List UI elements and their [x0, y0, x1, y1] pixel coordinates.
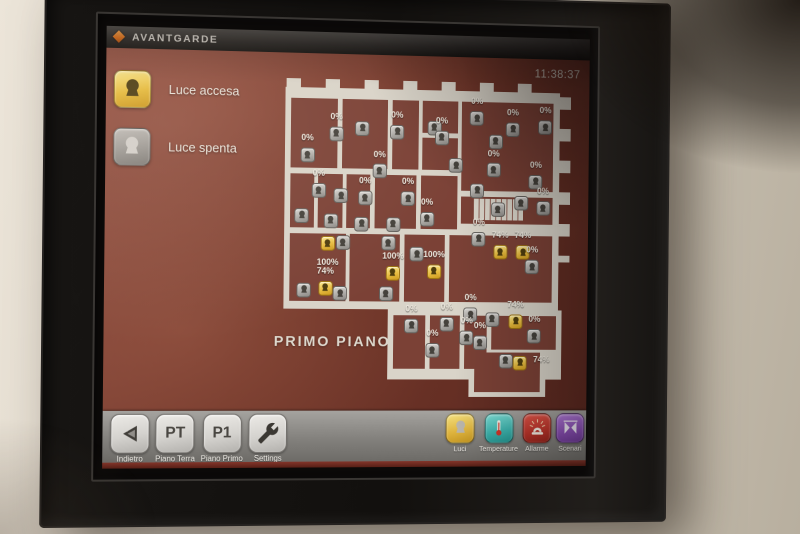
lamp-off-icon[interactable]	[527, 329, 541, 344]
lamp-off-icon[interactable]	[324, 213, 338, 228]
lamp-level-label: 74%	[533, 354, 550, 364]
brand-logo-text: AVANTGARDE	[132, 31, 218, 45]
lamp-level-label: 0%	[528, 314, 540, 324]
lamp-off-icon[interactable]	[356, 121, 370, 136]
bottom-toolbar: Indietro PT Piano Terra P1 Piano Primo	[102, 410, 586, 462]
lamp-level-label: 0%	[465, 293, 477, 303]
thermometer-icon	[489, 418, 508, 437]
lamp-level-label: 0%	[312, 168, 324, 178]
lamp-off-icon[interactable]	[390, 124, 404, 139]
photo-frame: AVANTGARDE 11:38:37 Luce accesa	[39, 0, 671, 528]
lamp-off-icon[interactable]	[536, 201, 550, 216]
lamp-off-icon[interactable]	[435, 130, 449, 145]
scenes-button[interactable]	[556, 413, 585, 443]
clock: 11:38:37	[535, 66, 581, 81]
lamp-level-label: 0%	[461, 316, 473, 326]
settings-button[interactable]	[249, 413, 288, 452]
lamp-level-label: 0%	[374, 149, 386, 159]
lamp-level-label: 0%	[301, 133, 314, 143]
lamp-off-icon[interactable]	[470, 183, 484, 198]
lamp-off-icon[interactable]	[506, 122, 520, 137]
bulb-off-icon	[113, 127, 151, 165]
lamp-level-label: 0%	[474, 321, 486, 331]
lamp-off-icon[interactable]	[449, 158, 463, 173]
lamp-on-icon[interactable]	[508, 314, 522, 329]
lamp-level-label: 0%	[530, 160, 542, 170]
bulb-icon	[451, 418, 470, 437]
back-icon	[118, 421, 142, 445]
lamp-level-label: 74%	[492, 230, 509, 240]
screen-bezel: AVANTGARDE 11:38:37 Luce accesa	[91, 12, 600, 482]
lamp-level-label: 0%	[421, 197, 433, 207]
lamp-level-label: 0%	[488, 148, 500, 158]
lamp-level-label: 74%	[317, 266, 334, 276]
lamp-on-icon[interactable]	[427, 264, 441, 279]
plan-title: PRIMO PIANO	[274, 333, 391, 350]
lamp-level-label: 0%	[359, 175, 371, 185]
alarm-label: Allarme	[525, 444, 548, 453]
lights-label: Luci	[453, 444, 466, 453]
lamp-off-icon[interactable]	[381, 236, 395, 251]
legend-label: Luce accesa	[169, 82, 240, 98]
lamp-off-icon[interactable]	[401, 191, 415, 206]
lamp-level-label: 0%	[471, 96, 483, 106]
lamp-off-icon[interactable]	[473, 336, 487, 351]
lamp-off-icon[interactable]	[329, 126, 343, 141]
legend-item-light-off: Luce spenta	[113, 127, 237, 167]
wrench-icon	[257, 422, 279, 445]
lamp-off-icon[interactable]	[404, 318, 418, 333]
lamp-on-icon[interactable]	[493, 245, 507, 260]
lamp-off-icon[interactable]	[336, 235, 350, 250]
lamp-level-label: 74%	[507, 299, 524, 309]
lamp-off-icon[interactable]	[372, 164, 386, 179]
brand-logo-icon	[113, 30, 125, 43]
lamp-off-icon[interactable]	[295, 208, 309, 223]
lamp-level-label: 0%	[426, 328, 438, 338]
lights-button[interactable]	[446, 413, 475, 443]
lamp-off-icon[interactable]	[386, 217, 400, 232]
wall: AVANTGARDE 11:38:37 Luce accesa	[0, 0, 800, 534]
alarm-icon	[528, 418, 547, 437]
lamp-on-icon[interactable]	[513, 356, 527, 370]
lamp-level-label: 100%	[423, 249, 445, 259]
back-button[interactable]	[110, 413, 150, 453]
lamp-off-icon[interactable]	[334, 188, 348, 203]
lamp-level-label: 0%	[473, 217, 485, 227]
floor-p1-button[interactable]: P1	[202, 413, 241, 453]
lamp-level-label: 0%	[391, 109, 403, 119]
lamp-level-label: 0%	[405, 303, 417, 313]
lamp-off-icon[interactable]	[410, 247, 424, 262]
lamp-off-icon[interactable]	[425, 343, 439, 358]
lamp-level-label: 100%	[382, 251, 404, 261]
lamp-off-icon[interactable]	[358, 191, 372, 206]
lamp-on-icon[interactable]	[321, 236, 335, 251]
lamp-on-icon[interactable]	[318, 281, 332, 296]
lamp-off-icon[interactable]	[514, 196, 528, 211]
floor-pt-button[interactable]: PT	[156, 413, 195, 453]
lamp-off-icon[interactable]	[472, 232, 486, 247]
legend-item-light-on: Luce accesa	[114, 69, 240, 110]
lamp-level-label: 0%	[330, 111, 342, 121]
lamp-off-icon[interactable]	[420, 212, 434, 227]
plan-room	[491, 316, 556, 350]
lamp-off-icon[interactable]	[297, 283, 311, 298]
scenes-label: Scenari	[558, 443, 581, 452]
main-content: 11:38:37 Luce accesa Luce spenta	[103, 47, 590, 410]
floor-plan: PRIMO PIANO 0%0%0%0%0%0%0%0%0%0%0%0%0%0%…	[278, 77, 572, 403]
lamp-off-icon[interactable]	[440, 317, 454, 332]
lamp-off-icon[interactable]	[300, 148, 314, 163]
bulb-on-icon	[114, 69, 152, 108]
lamp-off-icon[interactable]	[538, 121, 552, 136]
lamp-level-label: 0%	[537, 187, 549, 197]
legend-label: Luce spenta	[168, 139, 237, 155]
lamp-level-label: 0%	[402, 176, 414, 186]
lamp-level-label: 0%	[436, 115, 448, 125]
balcony-edge	[558, 97, 571, 263]
lamp-level-label: 0%	[441, 302, 453, 312]
lamp-off-icon[interactable]	[459, 331, 473, 346]
lamp-level-label: 0%	[526, 245, 538, 255]
touchscreen: AVANTGARDE 11:38:37 Luce accesa	[102, 25, 590, 468]
lamp-off-icon[interactable]	[525, 260, 539, 275]
lamp-level-label: 0%	[507, 107, 519, 117]
curtain-icon	[561, 418, 579, 437]
lamp-off-icon[interactable]	[491, 203, 505, 218]
lamp-off-icon[interactable]	[333, 286, 347, 301]
lamp-off-icon[interactable]	[486, 163, 500, 178]
lamp-off-icon[interactable]	[470, 111, 484, 126]
lamp-off-icon[interactable]	[485, 312, 499, 327]
lamp-level-label: 0%	[540, 106, 552, 116]
temperature-button[interactable]	[484, 413, 513, 443]
lamp-level-label: 74%	[515, 230, 532, 240]
lamp-off-icon[interactable]	[499, 354, 513, 369]
lamp-off-icon[interactable]	[355, 216, 369, 231]
alarm-button[interactable]	[523, 413, 552, 443]
lamp-off-icon[interactable]	[379, 287, 393, 302]
temperature-label: Temperature	[479, 444, 518, 453]
lamp-off-icon[interactable]	[311, 183, 325, 198]
screen-edge	[102, 460, 586, 468]
lamp-off-icon[interactable]	[489, 135, 503, 150]
lamp-on-icon[interactable]	[386, 266, 400, 281]
